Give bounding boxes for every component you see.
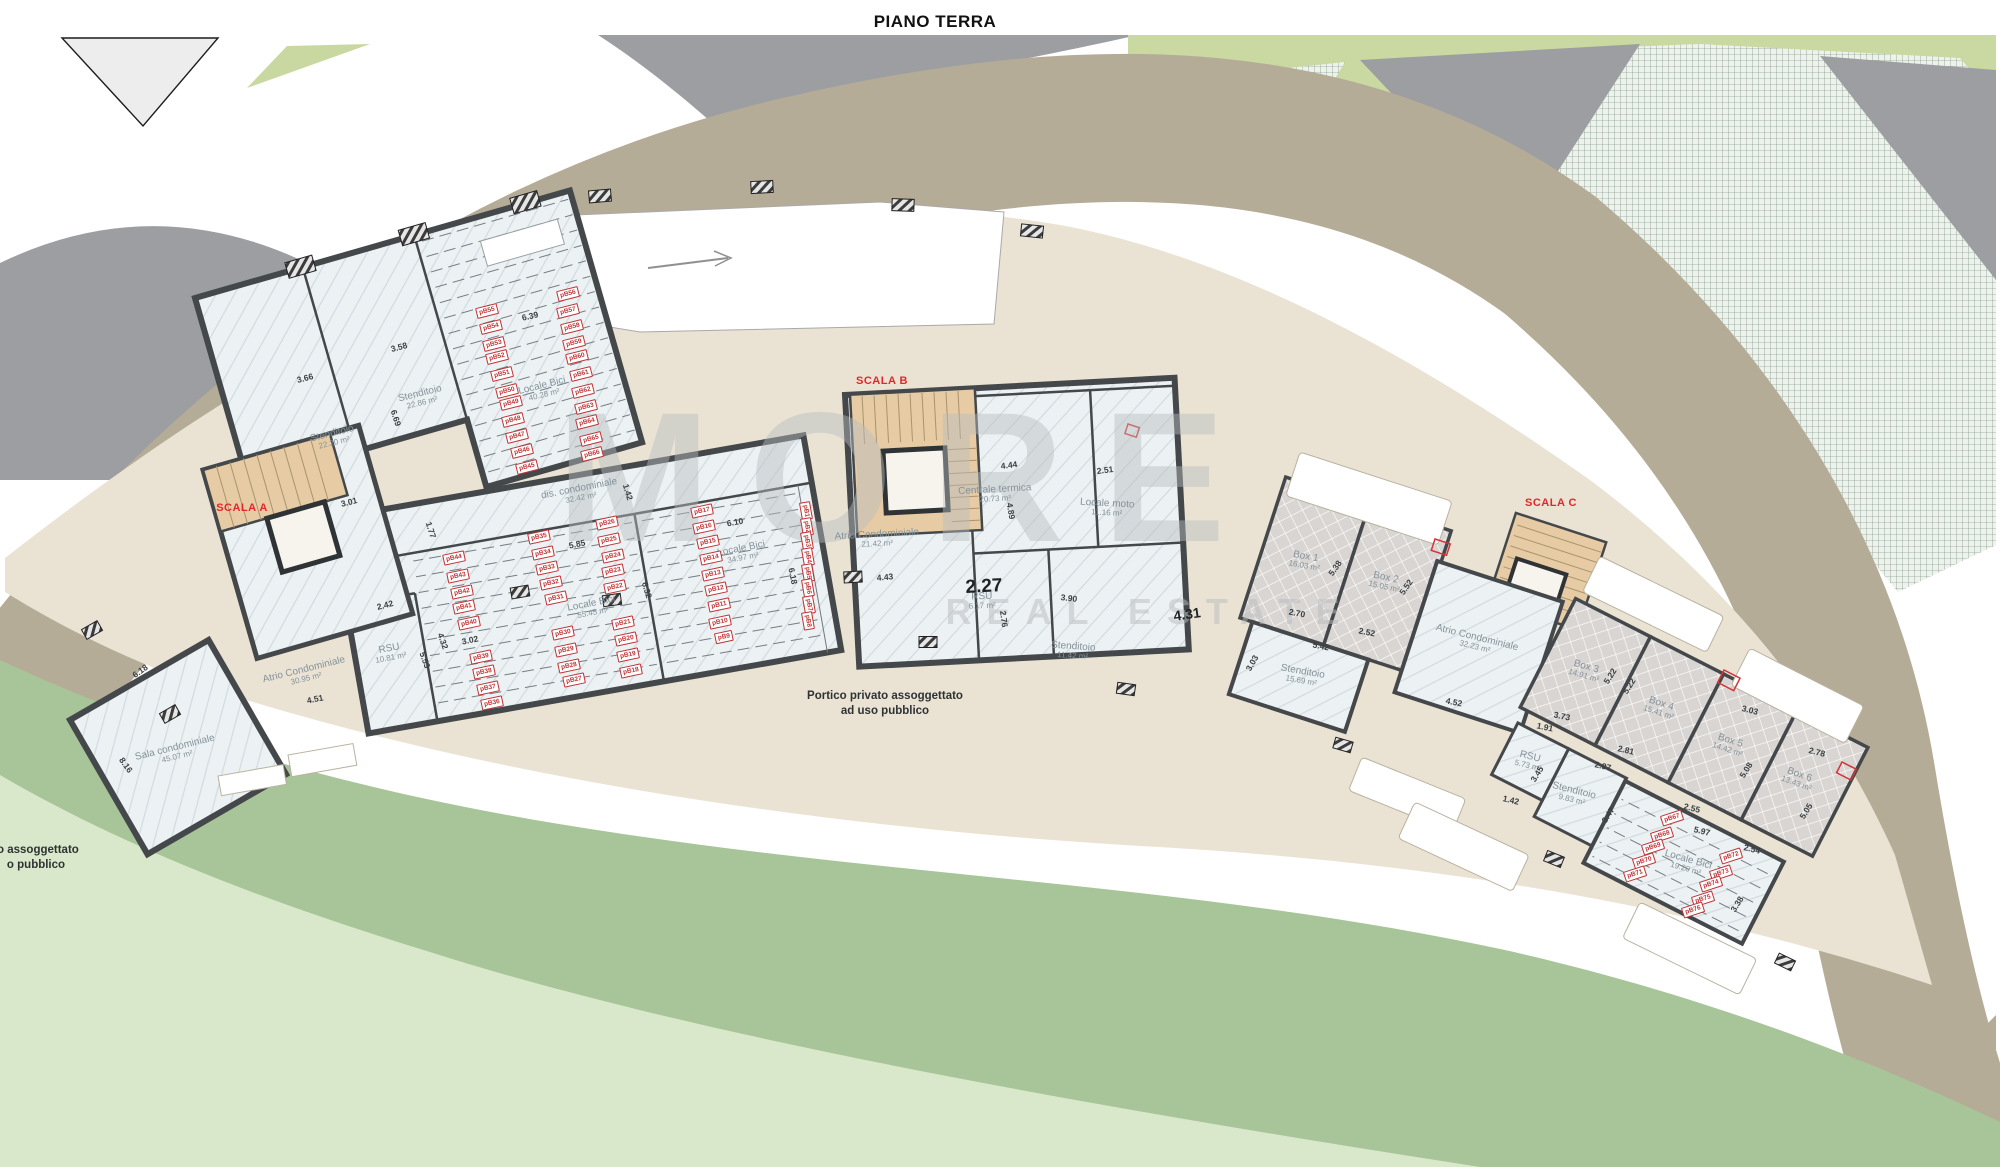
- stair-label: SCALA A: [216, 502, 268, 514]
- dimension-label: 3.38: [1728, 894, 1745, 913]
- note-label: to assoggettatoo pubblico: [0, 843, 79, 873]
- room-label: Box 415.41 m²: [1642, 694, 1678, 723]
- dimension-label: 2.97: [1594, 759, 1612, 772]
- parking-spot-label: pB28: [557, 658, 581, 673]
- parking-spot-label: pB9: [714, 630, 734, 645]
- dimension-label: 5.22: [1620, 676, 1637, 695]
- dimension-label: 5.53: [417, 651, 432, 670]
- parking-spot-label: pB32: [539, 575, 563, 590]
- room-label: Box 314.91 m²: [1567, 657, 1603, 685]
- parking-spot-label: pB46: [510, 443, 534, 459]
- room-label: Locale Bici19.20 m²: [1661, 848, 1713, 880]
- dimension-label: 6.39: [521, 309, 539, 322]
- parking-spot-label: pB12: [704, 581, 728, 596]
- parking-spot-label: pB60: [565, 349, 589, 365]
- parking-spot-label: pB27: [562, 672, 586, 687]
- room-label: Box 514.42 m²: [1711, 731, 1747, 760]
- dimension-label: 1.77: [424, 521, 439, 540]
- room-label: Atrio Condominiale30.95 m²: [262, 654, 349, 694]
- dimension-label: 3.47: [1599, 805, 1616, 824]
- parking-spot-label: pB38: [472, 664, 496, 679]
- room-label: Locale Bici34.97 m²: [716, 539, 767, 568]
- dimension-label: 5.38: [1326, 558, 1344, 577]
- parking-spot-label: pB76: [1681, 901, 1705, 918]
- parking-spot-label: pB17: [690, 503, 714, 518]
- parking-spot-label: pB44: [442, 550, 466, 565]
- dimension-label: 2.55: [1683, 801, 1701, 815]
- dimension-label: 2.42: [376, 598, 395, 612]
- parking-spot-label: pB26: [595, 515, 619, 530]
- dimension-label: 3.58: [390, 340, 409, 354]
- dimension-label: 4.52: [1445, 695, 1463, 708]
- parking-spot-label: pB39: [469, 649, 493, 664]
- dimension-label: 2.76: [998, 610, 1010, 628]
- note-label: Portico privato assoggettatoad uso pubbl…: [807, 689, 963, 719]
- parking-spot-label: pB45: [515, 459, 539, 475]
- dimension-label: 3.03: [1741, 703, 1759, 717]
- dimension-label: 1.91: [1536, 720, 1554, 733]
- dimension-label: 3.90: [1060, 592, 1078, 604]
- room-label: Sala condominiale45.07 m²: [134, 733, 218, 772]
- parking-spot-label: pB13: [701, 566, 725, 581]
- dimension-label: 4.89: [1005, 502, 1018, 520]
- parking-spot-label: pB57: [556, 303, 580, 319]
- room-label: Atrio Condominiale21.42 m²: [834, 527, 919, 551]
- dimension-label: 2.54: [1743, 842, 1761, 856]
- dimension-label: 2.51: [1096, 464, 1114, 476]
- parking-spot-label: pB54: [479, 319, 503, 335]
- dimension-label: 6.18: [786, 567, 799, 585]
- dimension-label: 3.03: [1244, 653, 1261, 672]
- room-label: Stenditoio22.20 m²: [309, 423, 357, 453]
- parking-spot-label: pB42: [450, 584, 474, 599]
- dimension-label: 6.18: [130, 662, 149, 680]
- dimension-label: 8.16: [117, 755, 135, 774]
- parking-spot-label: pB20: [614, 631, 638, 646]
- parking-spot-label: pB19: [616, 647, 640, 662]
- parking-spot-label: pB61: [569, 366, 593, 382]
- dimension-label: 5.08: [1737, 760, 1754, 779]
- parking-spot-label: pB35: [527, 529, 551, 544]
- parking-spot-label: pB56: [556, 286, 580, 302]
- room-label: Box 116.03 m²: [1288, 549, 1323, 574]
- parking-spot-label: pB30: [551, 625, 575, 640]
- dimension-label: 5.42: [1312, 640, 1330, 653]
- parking-spot-label: pB18: [619, 663, 643, 678]
- room-label: Locale Bici55.45 m²: [566, 594, 617, 623]
- room-label: Locale moto11.16 m²: [1079, 497, 1134, 520]
- dimension-label: 2.52: [1358, 626, 1376, 639]
- dimension-label: 2.27: [965, 575, 1003, 599]
- room-label: Stenditoio22.86 m²: [397, 383, 445, 413]
- parking-spot-label: pB64: [575, 414, 599, 430]
- parking-spot-label: pB71: [1623, 865, 1647, 882]
- floor-plan-stage: MORE REAL ESTATE PIANO TERRA Stenditoio2…: [0, 0, 2000, 1167]
- dimension-label: 2.70: [1288, 607, 1306, 620]
- dimension-label: 3.66: [296, 371, 315, 385]
- parking-spot-label: pB25: [597, 532, 621, 547]
- stair-label: SCALA B: [856, 375, 908, 387]
- dimension-label: 1.42: [621, 483, 635, 502]
- parking-spot-label: pB11: [707, 597, 730, 612]
- dimension-label: 3.73: [1553, 709, 1571, 722]
- dimension-label: 1.42: [1502, 793, 1520, 806]
- dimension-label: 4.44: [1000, 459, 1018, 471]
- parking-spot-label: pB52: [485, 349, 509, 365]
- parking-spot-label: pB8: [801, 611, 815, 631]
- dimension-label: 2.81: [1617, 743, 1635, 756]
- dimension-label: 4.32: [435, 632, 450, 651]
- dimension-label: 6.10: [726, 516, 744, 529]
- room-label: Stenditoio11.42 m²: [1050, 640, 1096, 663]
- dimension-label: 5.05: [1797, 801, 1814, 820]
- stair-label: SCALA C: [1525, 497, 1577, 509]
- room-label: Locale Bici40.28 m²: [517, 375, 569, 406]
- parking-spot-label: pB43: [446, 568, 470, 583]
- dimension-label: 4.43: [876, 571, 893, 582]
- room-label: Atrio Condominiale32.23 m²: [1433, 622, 1520, 662]
- parking-spot-label: pB29: [554, 642, 578, 657]
- parking-spot-label: pB63: [574, 399, 598, 415]
- dimension-label: 5.22: [1601, 666, 1618, 685]
- parking-spot-label: pB65: [579, 431, 603, 447]
- parking-spot-label: pB33: [535, 560, 559, 575]
- parking-spot-label: pB59: [562, 335, 586, 351]
- parking-spot-label: pB58: [560, 319, 584, 335]
- room-label: dis. condominiale32.42 m²: [540, 476, 620, 510]
- room-label: Centrale termica20.73 m²: [958, 482, 1032, 506]
- parking-spot-label: pB16: [692, 519, 716, 534]
- room-label: Stenditoio15.69 m²: [1278, 662, 1325, 689]
- parking-spot-label: pB72: [1719, 847, 1743, 864]
- parking-spot-label: pB62: [571, 383, 595, 399]
- dimension-label: 3.01: [340, 495, 358, 509]
- parking-spot-label: pB47: [505, 428, 529, 444]
- dimension-label: 5.85: [568, 537, 586, 550]
- dimension-label: 6.32: [640, 581, 654, 600]
- room-label: RSU10.81 m²: [373, 640, 408, 665]
- parking-spot-label: pB22: [603, 579, 627, 594]
- parking-spot-label: pB36: [480, 695, 504, 710]
- parking-spot-label: pB10: [708, 614, 732, 629]
- parking-spot-label: pB55: [475, 303, 499, 319]
- parking-spot-label: pB23: [601, 563, 625, 578]
- parking-spot-label: pB67: [1660, 809, 1684, 826]
- room-label: Box 613.43 m²: [1780, 764, 1816, 793]
- parking-spot-label: pB41: [452, 599, 476, 614]
- dimension-label: 3.02: [461, 633, 479, 646]
- parking-spot-label: pB66: [580, 446, 604, 462]
- parking-spot-label: pB48: [501, 412, 525, 428]
- labels-layer: Stenditoio22.20 m²Stenditoio22.86 m²Loca…: [0, 0, 2000, 1167]
- parking-spot-label: pB21: [611, 615, 635, 630]
- parking-spot-label: pB40: [457, 615, 481, 630]
- parking-spot-label: pB37: [476, 680, 500, 695]
- dimension-label: 4.31: [1172, 604, 1201, 624]
- dimension-label: 4.51: [306, 692, 324, 705]
- parking-spot-label: pB31: [544, 590, 568, 605]
- dimension-label: 5.97: [1693, 824, 1711, 838]
- parking-spot-label: pB34: [531, 545, 555, 560]
- dimension-label: 2.78: [1808, 745, 1826, 759]
- parking-spot-label: pB24: [601, 548, 625, 563]
- room-label: Stenditoio9.83 m²: [1549, 780, 1597, 810]
- parking-spot-label: pB51: [490, 366, 514, 382]
